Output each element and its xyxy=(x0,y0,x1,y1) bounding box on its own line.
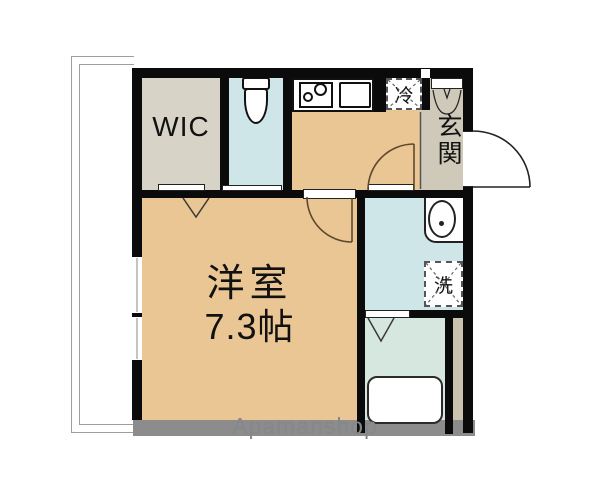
wall-washroom-bathroom xyxy=(410,310,463,318)
wall-wic-toilet xyxy=(220,68,229,190)
wic-door xyxy=(158,184,205,191)
refrigerator-label: 冷 xyxy=(394,81,413,108)
washbasin-icon xyxy=(428,200,456,238)
main-room-size-label: 7.3帖 xyxy=(142,302,357,346)
washbasin-faucet-dot xyxy=(439,221,444,226)
wall-right-upper xyxy=(463,68,473,131)
laundry-label: 洗 xyxy=(434,271,453,298)
washing-machine-space-icon: 洗 xyxy=(424,261,463,307)
toilet-door xyxy=(222,185,282,191)
refrigerator-space-icon: 冷 xyxy=(386,78,422,110)
window-icon-upper xyxy=(132,257,142,313)
genkan-label: 玄関 xyxy=(433,104,463,176)
wall-bathroom-right xyxy=(445,318,453,434)
bathroom-folding-door xyxy=(365,310,410,318)
kitchen-sink-icon xyxy=(339,82,371,108)
floor-plan: 冷 洗 xyxy=(0,0,600,480)
main-room-door-opening xyxy=(303,189,356,199)
shoe-cabinet-icon xyxy=(431,78,463,89)
stove-burner-large xyxy=(314,83,327,96)
wall-fridge-genkan-stub xyxy=(422,78,430,110)
wall-top-vent-gap xyxy=(421,69,430,78)
wall-mainroom-washroom xyxy=(357,190,365,433)
wall-toilet-kitchen xyxy=(283,68,292,190)
main-room-label: 洋室 xyxy=(142,256,357,302)
entrance-door-opening xyxy=(463,131,473,187)
watermark: Apamanshop xyxy=(222,413,388,439)
balcony-inner-line xyxy=(79,64,134,425)
wall-middle-horizontal xyxy=(132,190,472,198)
wall-right-lower xyxy=(463,187,473,433)
stove-burner-small xyxy=(303,92,313,102)
wall-left xyxy=(132,68,142,420)
window-icon-lower xyxy=(132,317,142,360)
entrance-door-arc-icon xyxy=(473,131,530,187)
wic-label: WIC xyxy=(142,110,220,144)
wall-counter-stub xyxy=(374,68,386,112)
washroom-door xyxy=(368,184,414,191)
